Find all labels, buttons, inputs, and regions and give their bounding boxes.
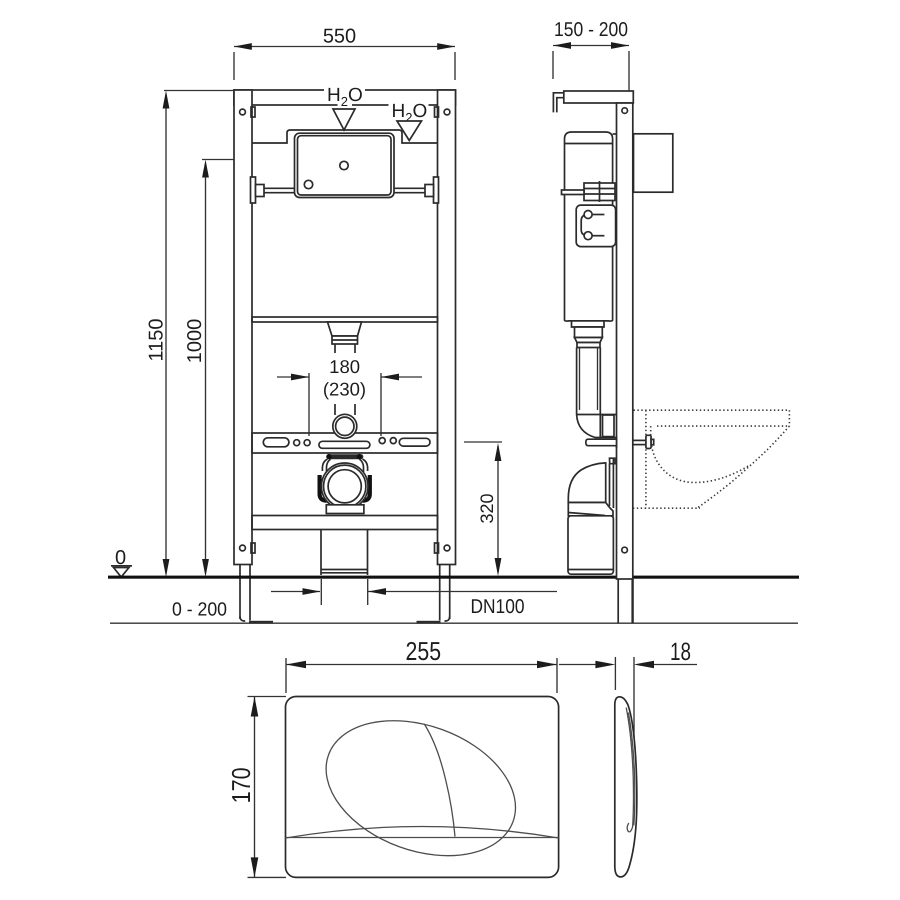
svg-text:170: 170 (226, 767, 256, 803)
svg-text:150 - 200: 150 - 200 (554, 19, 628, 41)
svg-text:(230): (230) (323, 379, 366, 400)
svg-text:255: 255 (406, 636, 442, 666)
svg-text:1150: 1150 (146, 318, 168, 361)
svg-text:DN100: DN100 (471, 596, 525, 618)
svg-text:320: 320 (477, 493, 497, 523)
svg-text:1000: 1000 (184, 319, 206, 364)
svg-text:550: 550 (323, 26, 356, 48)
svg-text:0 - 200: 0 - 200 (172, 600, 227, 621)
svg-text:18: 18 (670, 638, 691, 666)
svg-text:180: 180 (329, 356, 360, 377)
